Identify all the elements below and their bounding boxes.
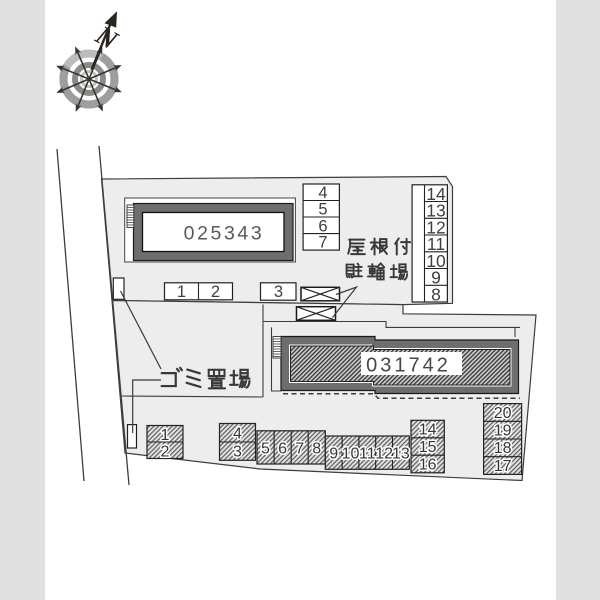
- svg-text:9: 9: [329, 446, 338, 463]
- svg-text:5: 5: [261, 441, 270, 458]
- svg-text:7: 7: [318, 234, 327, 252]
- svg-text:025343: 025343: [184, 223, 265, 245]
- svg-text:031742: 031742: [366, 355, 451, 377]
- svg-text:15: 15: [419, 439, 437, 456]
- svg-text:18: 18: [494, 440, 512, 457]
- svg-text:13: 13: [392, 446, 410, 463]
- svg-text:6: 6: [318, 217, 327, 235]
- svg-text:6: 6: [278, 441, 287, 458]
- svg-text:8: 8: [312, 441, 321, 458]
- svg-text:3: 3: [233, 444, 242, 461]
- svg-text:2: 2: [161, 444, 170, 461]
- svg-text:10: 10: [342, 446, 360, 463]
- svg-text:19: 19: [494, 423, 512, 440]
- svg-text:3: 3: [274, 283, 283, 301]
- svg-text:4: 4: [318, 184, 327, 202]
- svg-text:7: 7: [295, 441, 304, 458]
- svg-text:17: 17: [494, 458, 512, 475]
- svg-text:4: 4: [233, 426, 242, 443]
- svg-text:11: 11: [359, 446, 376, 463]
- svg-text:12: 12: [375, 446, 393, 463]
- svg-text:2: 2: [211, 283, 220, 301]
- svg-text:5: 5: [318, 201, 327, 219]
- svg-text:14: 14: [419, 422, 437, 439]
- svg-text:16: 16: [419, 457, 437, 474]
- svg-text:8: 8: [431, 284, 441, 304]
- svg-text:1: 1: [161, 427, 170, 444]
- svg-text:20: 20: [494, 405, 512, 422]
- svg-text:1: 1: [177, 283, 186, 301]
